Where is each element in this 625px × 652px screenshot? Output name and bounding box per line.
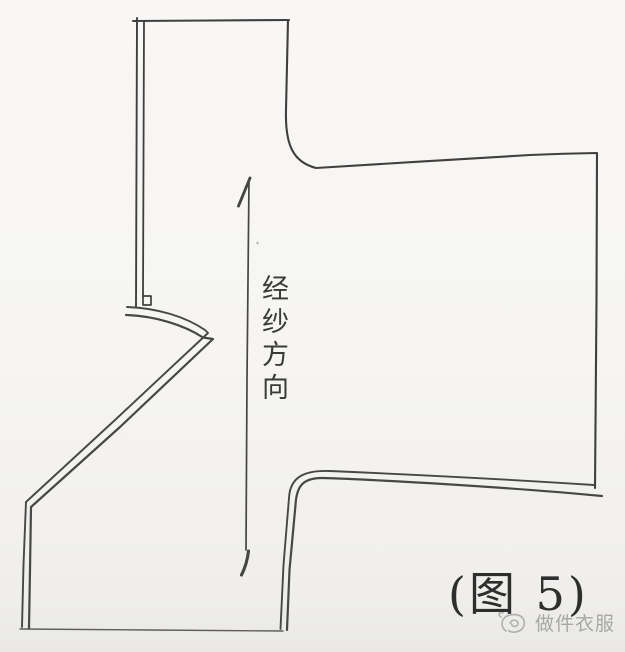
body-outline-right bbox=[286, 20, 597, 488]
watermark: 做件衣服 bbox=[496, 608, 615, 636]
grain-arrow-bottom-barb bbox=[242, 551, 249, 575]
grain-direction-label: 经纱方向 bbox=[253, 274, 292, 406]
scribble-snail-logo-icon bbox=[496, 608, 530, 636]
fold-notch-square bbox=[143, 296, 151, 305]
scanned-pattern-figure: 经纱方向 (图 5) 做件衣服 bbox=[0, 0, 625, 652]
watermark-text: 做件衣服 bbox=[535, 609, 615, 636]
left-seam-inner-line bbox=[22, 307, 208, 627]
sleeve-fold-outer-line bbox=[136, 18, 137, 307]
sleeve-top-edge bbox=[133, 20, 289, 21]
ink-speck bbox=[256, 242, 258, 244]
grain-arrow-shaft bbox=[246, 179, 249, 550]
left-seam-outer-line bbox=[29, 315, 213, 628]
sleeve-fold-inner-line bbox=[143, 21, 144, 296]
bottom-hem-line bbox=[20, 629, 283, 631]
pattern-diagram-drawing bbox=[0, 0, 625, 652]
